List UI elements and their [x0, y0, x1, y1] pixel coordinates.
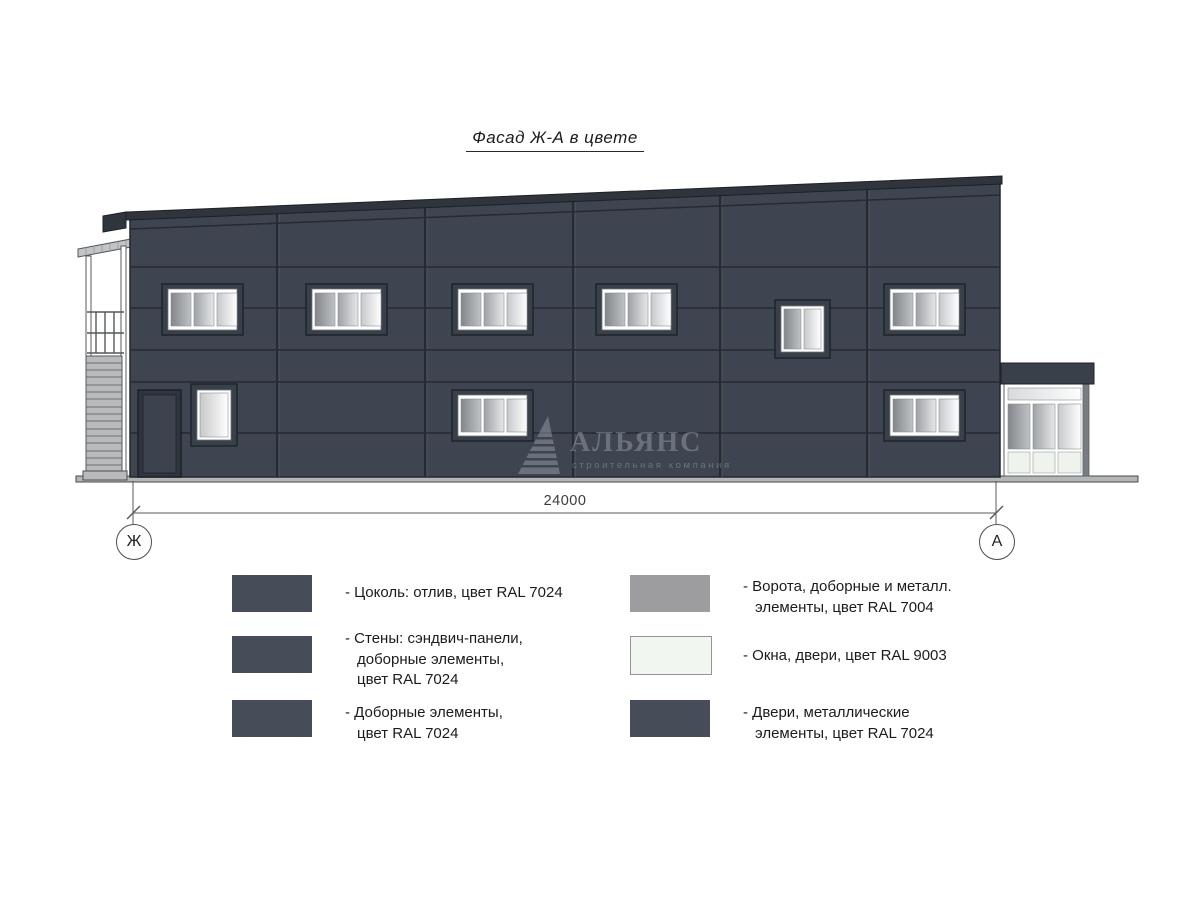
alliance-logo-triangle-icon [516, 415, 562, 475]
exterior-stair [78, 239, 131, 480]
legend-label-dobornye: - Доборные элементы, цвет RAL 7024 [345, 703, 503, 744]
legend-swatch-vorota [630, 575, 710, 612]
entrance-door [138, 390, 181, 477]
dimension-label: 24000 [519, 493, 611, 509]
axis-letter-zh: Ж [127, 533, 142, 551]
axis-letter-a: А [992, 533, 1003, 551]
window-top-6 [884, 284, 965, 335]
vestibule-roof [1001, 363, 1094, 384]
legend-swatch-steny [232, 636, 312, 673]
window-top-4 [596, 284, 677, 335]
legend-swatch-okna [630, 636, 712, 675]
legend-label-dveri: - Двери, металлические элементы, цвет RA… [743, 703, 934, 744]
window-top-3 [452, 284, 533, 335]
axis-marker-zh: Ж [116, 524, 152, 560]
watermark-subtitle: строительная компания [572, 460, 732, 471]
drawing-title: Фасад Ж-А в цвете [415, 128, 695, 152]
window-bottom-2 [884, 390, 965, 441]
legend-label-okna: - Окна, двери, цвет RAL 9003 [743, 646, 947, 667]
legend-label-tsokol: - Цоколь: отлив, цвет RAL 7024 [345, 583, 563, 604]
window-top-5-small [775, 300, 830, 358]
legend-swatch-dveri [630, 700, 710, 737]
legend-swatch-dobornye [232, 700, 312, 737]
legend-label-vorota: - Ворота, доборные и металл. элементы, ц… [743, 577, 952, 618]
watermark: АЛЬЯНС строительная компания [516, 415, 796, 477]
stair-base-pad [83, 471, 127, 480]
window-bottom-small [191, 384, 237, 446]
roof-overhang-left [103, 212, 126, 232]
page-title: Фасад Ж-А в цвете [466, 128, 644, 152]
window-top-2 [306, 284, 387, 335]
axis-marker-a: А [979, 524, 1015, 560]
facade-drawing-sheet: Фасад Ж-А в цвете АЛЬЯНС строительная ко… [0, 0, 1200, 900]
vestibule [1001, 363, 1094, 476]
window-top-1 [162, 284, 243, 335]
stair-railing [87, 312, 124, 353]
stair-flight [86, 356, 122, 473]
legend-swatch-tsokol [232, 575, 312, 612]
vestibule-transom [1008, 388, 1081, 400]
stair-post-left [86, 256, 91, 357]
legend-label-steny: - Стены: сэндвич-панели, доборные элемен… [345, 629, 523, 691]
watermark-company-name: АЛЬЯНС [570, 429, 702, 457]
